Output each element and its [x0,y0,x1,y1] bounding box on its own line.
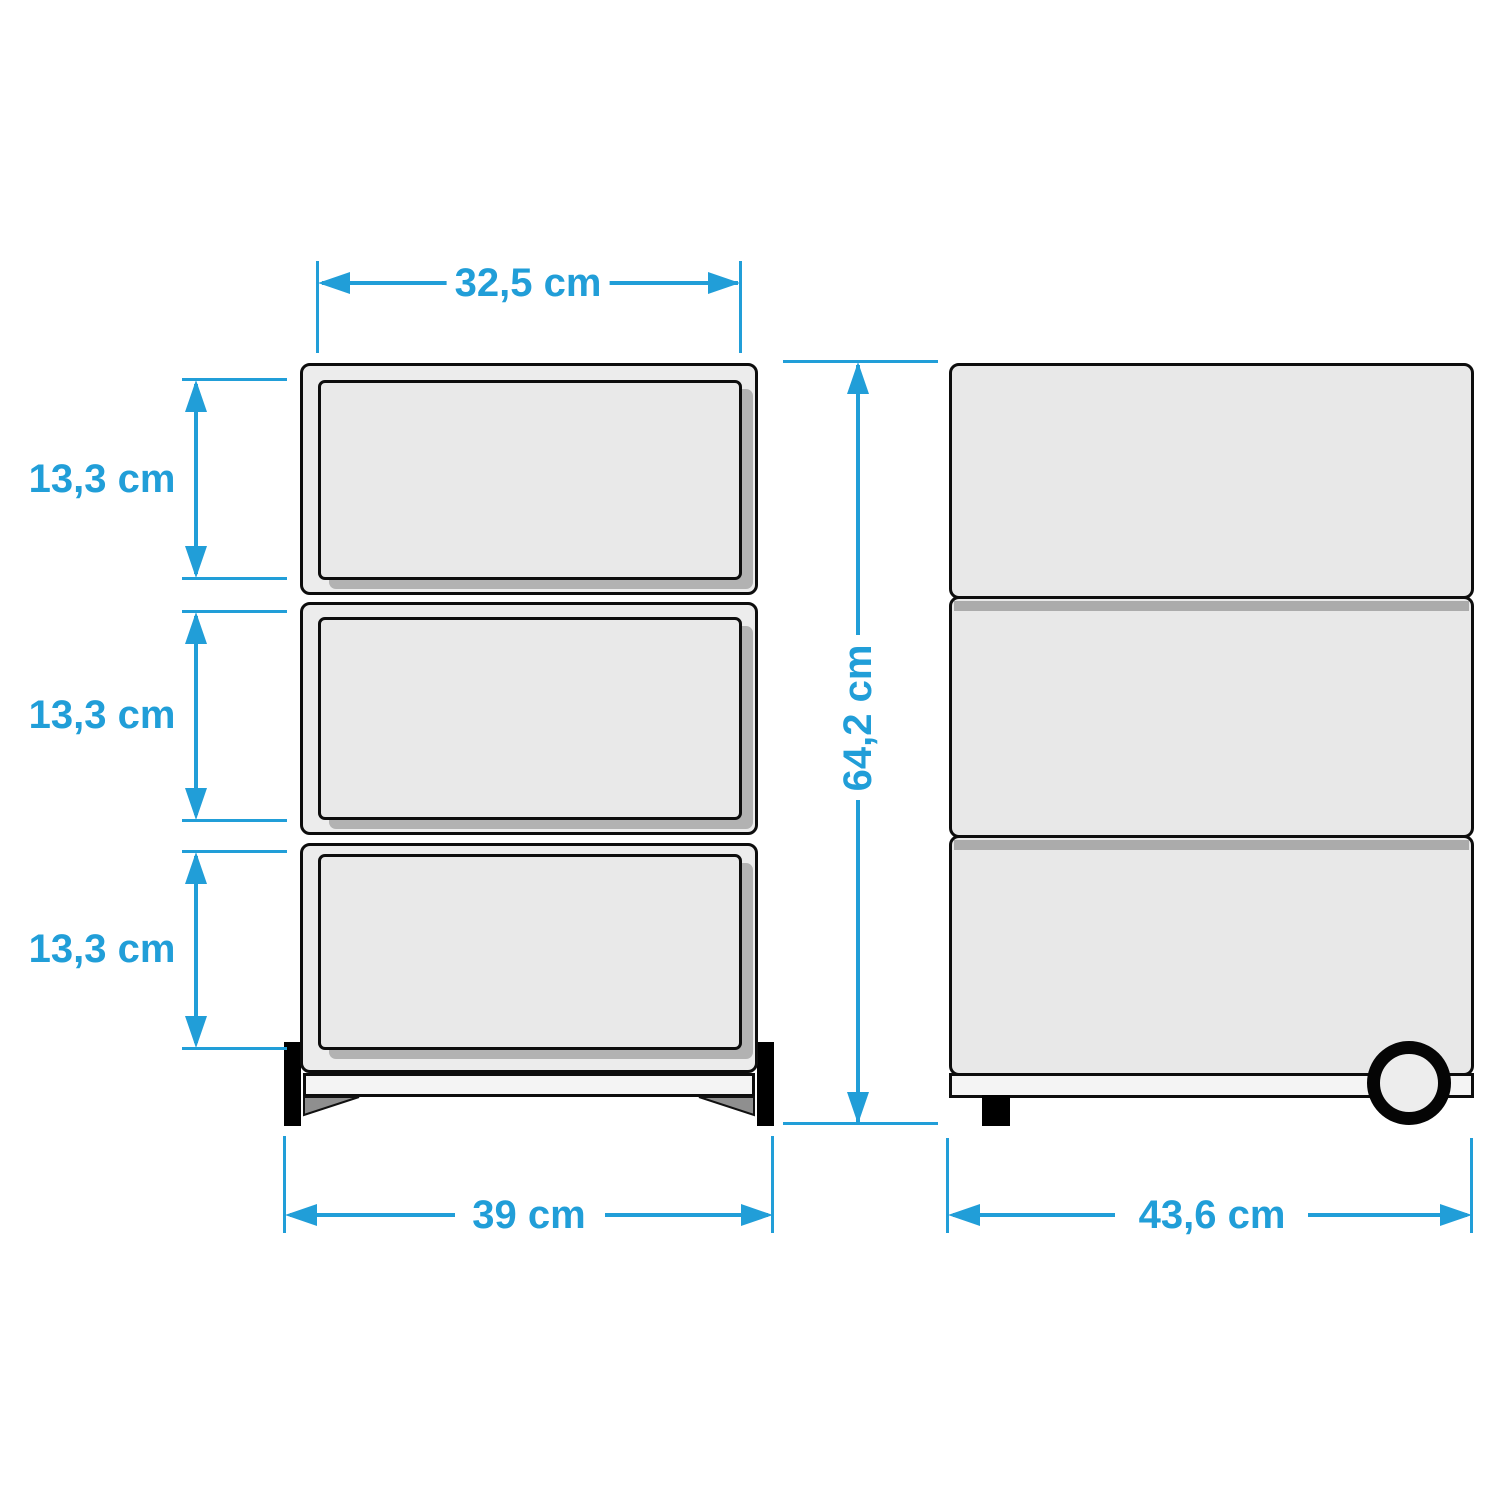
dim-drawer-1-arrow-down [185,546,207,578]
side-panel-1 [949,363,1474,599]
dim-top-width-label: 32,5 cm [447,263,610,303]
front-left-foot [284,1042,301,1126]
drawer-front-1 [318,380,742,580]
dim-total-height-line-bottom [856,800,860,1122]
dim-drawer-2-label: 13,3 cm [21,695,184,735]
dim-total-height-label: 64,2 cm [838,637,878,800]
side-divider-strip-2 [954,840,1469,850]
dim-drawer-1-label: 13,3 cm [21,459,184,499]
dimension-diagram: 32,5 cm 13,3 cm 13,3 cm 13,3 cm 39 cm [0,0,1500,1500]
dim-depth-arrow-left [948,1204,980,1226]
dim-depth-label: 43,6 cm [1131,1195,1294,1235]
dim-drawer-2-arrow-up [185,612,207,644]
dim-top-width-arrow-right [708,272,740,294]
drawer-front-2 [318,617,742,820]
dim-drawer-3-line [194,856,198,1043]
dim-drawer-3-label: 13,3 cm [21,929,184,969]
front-plinth [303,1073,755,1097]
side-divider-strip-1 [954,601,1469,611]
front-right-foot [757,1042,774,1126]
dim-drawer-2-arrow-down [185,788,207,820]
dim-depth-arrow-right [1440,1204,1472,1226]
dim-drawer-3-arrow-down [185,1016,207,1048]
front-base-wedge-right [697,1096,755,1118]
dim-total-height-arrow-down [847,1092,869,1124]
side-wheel [1367,1041,1451,1125]
side-panel-2 [949,596,1474,838]
dim-top-width-arrow-left [318,272,350,294]
side-panel-3 [949,835,1474,1076]
dim-total-height-line-top [856,365,860,635]
dim-bottom-width-label: 39 cm [464,1195,593,1235]
dim-drawer-3-arrow-up [185,852,207,884]
side-front-foot [982,1095,1010,1126]
front-base-wedge-left [303,1096,361,1118]
dim-bottom-width-arrow-right [741,1204,773,1226]
dim-drawer-1-arrow-up [185,380,207,412]
dim-drawer-2-line [194,616,198,815]
drawer-front-3 [318,854,742,1050]
dim-bottom-width-arrow-left [285,1204,317,1226]
dim-total-height-arrow-up [847,362,869,394]
